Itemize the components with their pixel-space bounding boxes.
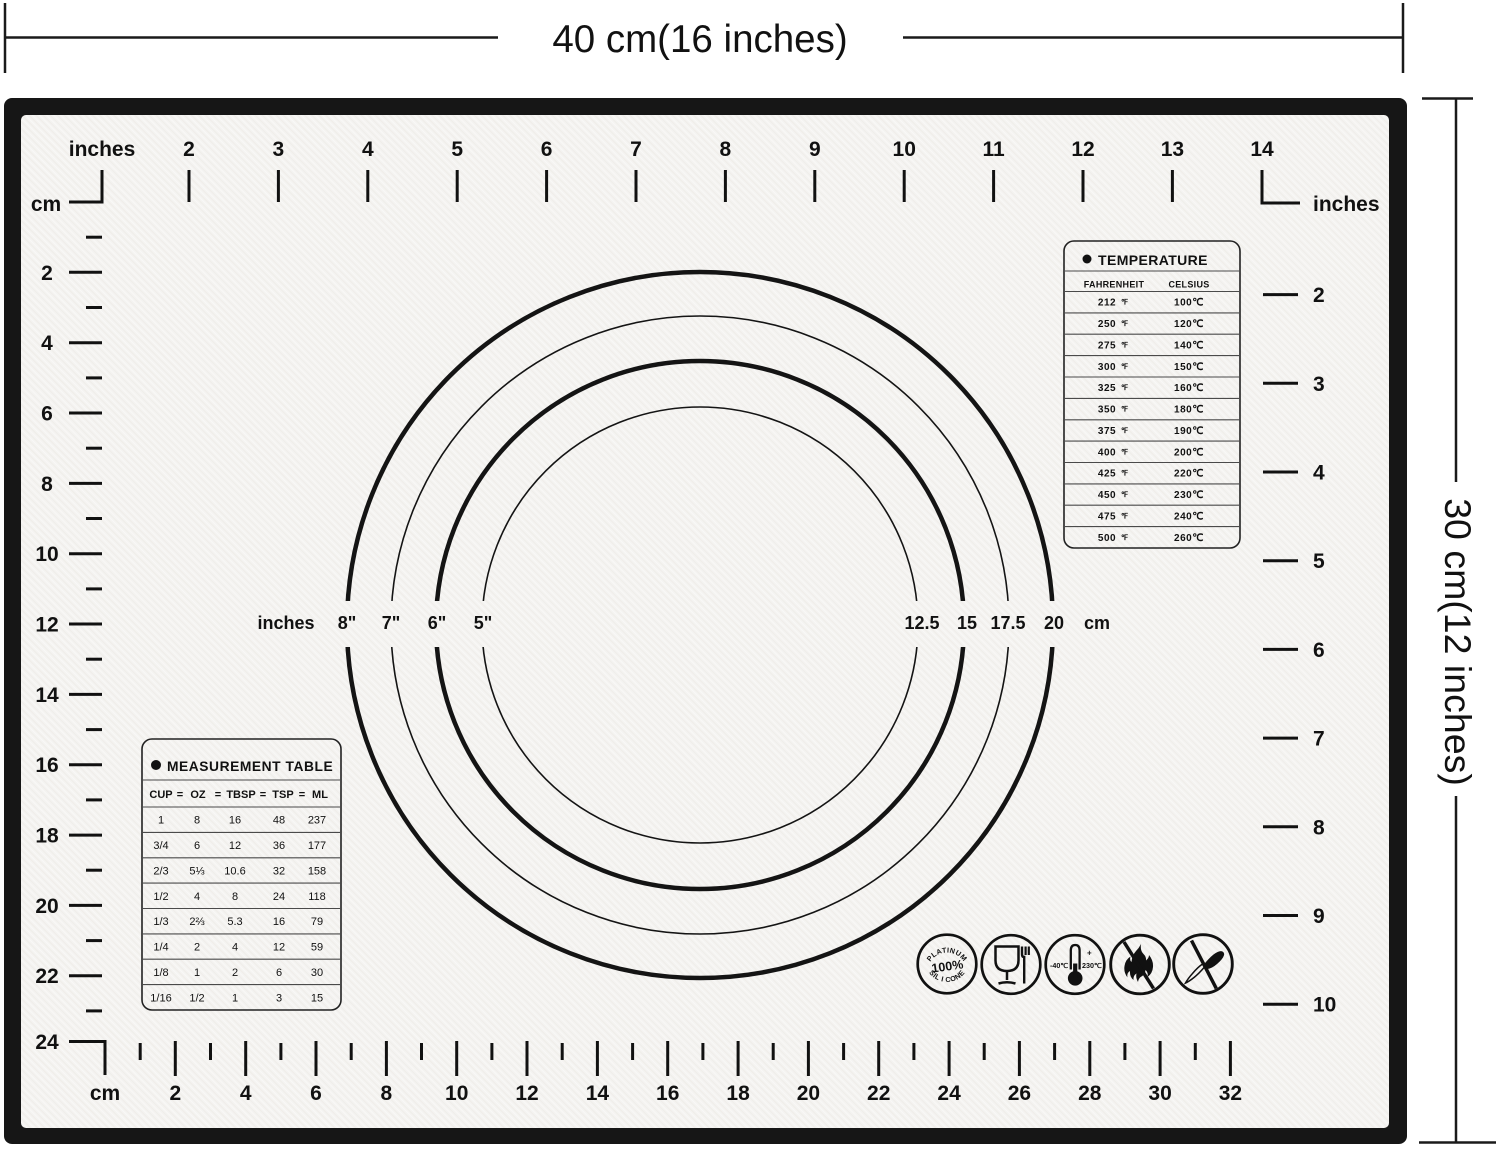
svg-text:10: 10: [445, 1082, 468, 1105]
svg-text:2: 2: [169, 1082, 181, 1105]
svg-text:℉: ℉: [1121, 533, 1129, 542]
svg-text:8: 8: [720, 138, 732, 161]
svg-text:30 cm(12 inches): 30 cm(12 inches): [1437, 498, 1479, 786]
svg-text:3: 3: [1313, 373, 1325, 396]
svg-text:CUP: CUP: [149, 789, 172, 801]
svg-text:11: 11: [982, 138, 1005, 161]
svg-text:3/4: 3/4: [153, 840, 168, 852]
svg-text:ML: ML: [312, 789, 328, 801]
svg-text:40 cm(16 inches): 40 cm(16 inches): [552, 18, 847, 61]
svg-text:400: 400: [1098, 447, 1116, 458]
svg-text:30: 30: [311, 967, 323, 979]
svg-text:200℃: 200℃: [1174, 447, 1204, 458]
svg-text:℉: ℉: [1121, 362, 1129, 371]
svg-text:4: 4: [1313, 462, 1325, 485]
svg-text:2: 2: [194, 942, 200, 954]
svg-text:150℃: 150℃: [1174, 362, 1204, 373]
svg-text:118: 118: [308, 891, 326, 903]
svg-text:24: 24: [273, 891, 285, 903]
svg-text:1/3: 1/3: [153, 916, 168, 928]
svg-text:7: 7: [630, 138, 642, 161]
svg-text:℉: ℉: [1121, 319, 1129, 328]
svg-text:inches: inches: [69, 138, 136, 161]
svg-text:16: 16: [273, 916, 285, 928]
svg-text:4: 4: [362, 138, 374, 161]
svg-text:=: =: [260, 789, 266, 801]
svg-text:℉: ℉: [1121, 469, 1129, 478]
svg-text:=: =: [215, 789, 221, 801]
svg-text:5: 5: [451, 138, 463, 161]
svg-text:8: 8: [232, 891, 238, 903]
svg-text:10: 10: [1313, 994, 1336, 1017]
svg-text:1/16: 1/16: [150, 992, 171, 1004]
svg-text:TBSP: TBSP: [226, 789, 255, 801]
svg-text:6: 6: [1313, 639, 1325, 662]
svg-text:18: 18: [726, 1082, 750, 1105]
svg-text:190℃: 190℃: [1174, 426, 1204, 437]
svg-text:32: 32: [1219, 1082, 1242, 1105]
svg-text:237: 237: [308, 815, 326, 827]
svg-text:-40℃: -40℃: [1050, 961, 1068, 970]
svg-text:24: 24: [937, 1082, 961, 1105]
svg-text:℉: ℉: [1121, 405, 1129, 414]
svg-text:7": 7": [382, 613, 401, 633]
svg-text:12: 12: [273, 942, 285, 954]
svg-text:17.5: 17.5: [990, 613, 1025, 633]
svg-text:100℃: 100℃: [1174, 298, 1204, 309]
svg-text:inches: inches: [1313, 193, 1380, 216]
svg-text:79: 79: [311, 916, 323, 928]
svg-text:1: 1: [194, 967, 200, 979]
svg-text:48: 48: [273, 815, 285, 827]
svg-text:12: 12: [229, 840, 241, 852]
svg-text:℉: ℉: [1121, 426, 1129, 435]
svg-text:12: 12: [515, 1082, 538, 1105]
svg-text:2: 2: [183, 138, 195, 161]
svg-text:14: 14: [1250, 138, 1274, 161]
svg-text:4: 4: [194, 891, 200, 903]
svg-text:212: 212: [1098, 298, 1116, 309]
svg-text:OZ: OZ: [190, 789, 206, 801]
svg-text:1/2: 1/2: [189, 992, 204, 1004]
svg-text:9: 9: [809, 138, 821, 161]
svg-text:230℃: 230℃: [1082, 961, 1102, 970]
svg-text:cm: cm: [1084, 613, 1110, 633]
svg-text:20: 20: [797, 1082, 820, 1105]
svg-text:℉: ℉: [1121, 447, 1129, 456]
svg-text:5: 5: [1313, 550, 1325, 573]
svg-text:4: 4: [41, 332, 53, 355]
svg-text:16: 16: [229, 815, 241, 827]
svg-text:5.3: 5.3: [227, 916, 242, 928]
svg-text:500: 500: [1098, 533, 1116, 544]
svg-text:8: 8: [194, 815, 200, 827]
svg-text:6: 6: [541, 138, 553, 161]
svg-text:375: 375: [1098, 426, 1116, 437]
svg-text:10: 10: [893, 138, 916, 161]
svg-text:℉: ℉: [1121, 340, 1129, 349]
svg-text:5": 5": [474, 613, 493, 633]
svg-text:1: 1: [158, 815, 164, 827]
svg-text:30: 30: [1148, 1082, 1171, 1105]
svg-text:FAHRENHEIT: FAHRENHEIT: [1084, 280, 1145, 290]
svg-text:325: 325: [1098, 383, 1116, 394]
svg-text:1/2: 1/2: [153, 891, 168, 903]
svg-text:16: 16: [35, 754, 58, 777]
svg-text:6: 6: [194, 840, 200, 852]
svg-text:℉: ℉: [1121, 383, 1129, 392]
svg-text:inches: inches: [257, 613, 314, 633]
svg-text:cm: cm: [31, 193, 61, 216]
svg-text:10: 10: [35, 543, 58, 566]
svg-text:22: 22: [867, 1082, 890, 1105]
svg-text:℉: ℉: [1121, 298, 1129, 307]
svg-text:6: 6: [310, 1082, 322, 1105]
svg-text:1/8: 1/8: [153, 967, 168, 979]
svg-text:5⅓: 5⅓: [189, 865, 204, 877]
svg-text:2/3: 2/3: [153, 865, 168, 877]
svg-text:28: 28: [1078, 1082, 1102, 1105]
svg-text:36: 36: [273, 840, 285, 852]
svg-text:12.5: 12.5: [904, 613, 939, 633]
svg-text:220℃: 220℃: [1174, 469, 1204, 480]
svg-text:2: 2: [41, 262, 53, 285]
svg-text:8: 8: [41, 473, 53, 496]
svg-text:32: 32: [273, 865, 285, 877]
svg-text:3: 3: [276, 992, 282, 1004]
svg-text:450: 450: [1098, 490, 1116, 501]
svg-text:14: 14: [586, 1082, 610, 1105]
svg-text:13: 13: [1161, 138, 1184, 161]
svg-text:=: =: [299, 789, 305, 801]
svg-text:158: 158: [308, 865, 326, 877]
svg-text:MEASUREMENT TABLE: MEASUREMENT TABLE: [167, 759, 333, 774]
svg-text:475: 475: [1098, 511, 1116, 522]
svg-text:160℃: 160℃: [1174, 383, 1204, 394]
svg-text:22: 22: [35, 965, 58, 988]
svg-text:180℃: 180℃: [1174, 405, 1204, 416]
svg-text:20: 20: [1044, 613, 1064, 633]
svg-text:10.6: 10.6: [224, 865, 245, 877]
svg-text:300: 300: [1098, 362, 1116, 373]
svg-text:cm: cm: [90, 1082, 120, 1105]
svg-text:275: 275: [1098, 340, 1116, 351]
svg-text:260℃: 260℃: [1174, 533, 1204, 544]
svg-text:20: 20: [35, 895, 58, 918]
svg-text:15: 15: [957, 613, 977, 633]
svg-text:14: 14: [35, 684, 59, 707]
svg-text:CELSIUS: CELSIUS: [1168, 280, 1209, 290]
svg-text:2: 2: [1313, 284, 1325, 307]
svg-text:2: 2: [232, 967, 238, 979]
svg-text:425: 425: [1098, 469, 1116, 480]
svg-text:24: 24: [35, 1031, 59, 1054]
svg-text:1/4: 1/4: [153, 942, 168, 954]
svg-text:250: 250: [1098, 319, 1116, 330]
svg-text:4: 4: [240, 1082, 252, 1105]
svg-text:2⅔: 2⅔: [189, 916, 204, 928]
svg-text:9: 9: [1313, 905, 1325, 928]
svg-text:8": 8": [338, 613, 357, 633]
svg-text:8: 8: [381, 1082, 393, 1105]
svg-text:1: 1: [232, 992, 238, 1004]
svg-text:18: 18: [35, 825, 59, 848]
svg-text:350: 350: [1098, 405, 1116, 416]
svg-text:6": 6": [428, 613, 447, 633]
svg-text:3: 3: [273, 138, 285, 161]
svg-text:=: =: [177, 789, 183, 801]
svg-text:230℃: 230℃: [1174, 490, 1204, 501]
svg-text:8: 8: [1313, 816, 1325, 839]
svg-text:12: 12: [1071, 138, 1094, 161]
svg-text:6: 6: [41, 403, 53, 426]
svg-text:7: 7: [1313, 728, 1325, 751]
svg-text:TEMPERATURE: TEMPERATURE: [1098, 252, 1208, 268]
svg-text:4: 4: [232, 942, 238, 954]
svg-text:℉: ℉: [1121, 511, 1129, 520]
svg-text:15: 15: [311, 992, 323, 1004]
svg-text:+: +: [1087, 949, 1092, 958]
svg-text:177: 177: [308, 840, 326, 852]
svg-text:26: 26: [1008, 1082, 1031, 1105]
svg-text:6: 6: [276, 967, 282, 979]
svg-text:TSP: TSP: [272, 789, 293, 801]
svg-text:240℃: 240℃: [1174, 511, 1204, 522]
svg-text:59: 59: [311, 942, 323, 954]
svg-text:12: 12: [35, 614, 58, 637]
svg-text:140℃: 140℃: [1174, 340, 1204, 351]
svg-text:120℃: 120℃: [1174, 319, 1204, 330]
svg-text:16: 16: [656, 1082, 679, 1105]
svg-text:℉: ℉: [1121, 490, 1129, 499]
